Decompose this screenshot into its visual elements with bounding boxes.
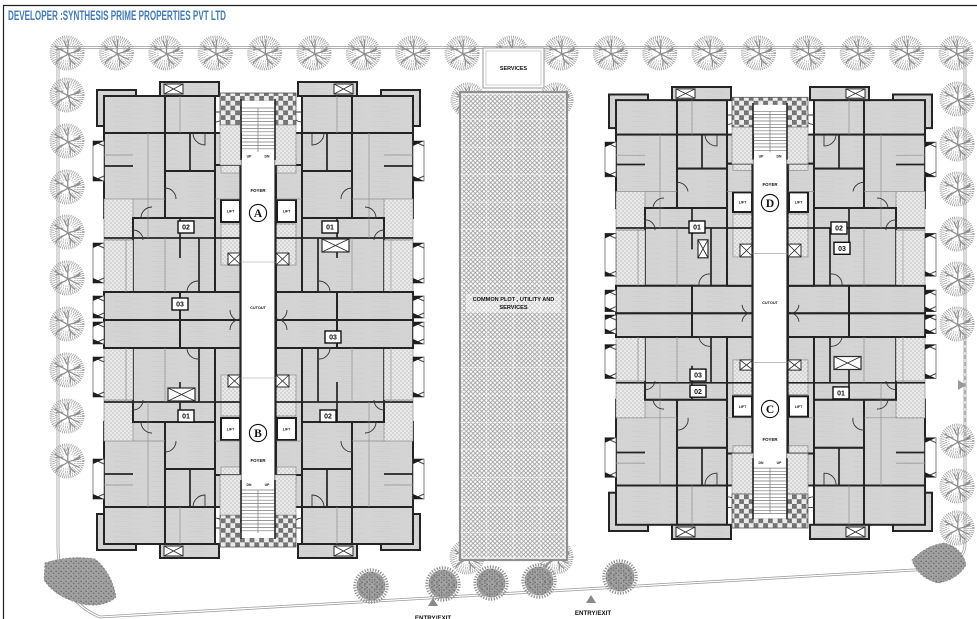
svg-text:UP: UP	[777, 461, 782, 465]
svg-text:ENTRY/EXIT: ENTRY/EXIT	[415, 615, 451, 619]
svg-text:CUTOUT: CUTOUT	[762, 301, 778, 305]
svg-text:03: 03	[176, 302, 184, 309]
svg-text:03: 03	[838, 246, 846, 253]
svg-text:DN: DN	[247, 483, 252, 487]
svg-text:DN: DN	[777, 155, 782, 159]
svg-text:LIFT: LIFT	[739, 405, 747, 409]
svg-text:LIFT: LIFT	[739, 201, 747, 205]
svg-text:C: C	[766, 404, 774, 416]
svg-text:01: 01	[182, 414, 190, 421]
svg-text:SERVICES: SERVICES	[500, 66, 528, 72]
svg-text:02: 02	[835, 226, 843, 233]
svg-text:LIFT: LIFT	[227, 427, 235, 431]
svg-text:ENTRY/EXIT: ENTRY/EXIT	[575, 610, 611, 617]
svg-text:FOYER: FOYER	[762, 437, 778, 442]
svg-text:LIFT: LIFT	[283, 427, 291, 431]
svg-text:A: A	[254, 208, 263, 220]
svg-text:01: 01	[326, 225, 334, 232]
svg-text:DN: DN	[759, 461, 764, 465]
svg-text:DN: DN	[265, 155, 270, 159]
svg-text:03: 03	[694, 373, 702, 380]
svg-text:LIFT: LIFT	[283, 209, 291, 213]
svg-text:CUTOUT: CUTOUT	[250, 306, 266, 310]
svg-text:FOYER: FOYER	[250, 188, 266, 193]
svg-text:D: D	[766, 198, 774, 210]
svg-text:01: 01	[837, 391, 845, 398]
svg-text:LIFT: LIFT	[227, 209, 235, 213]
svg-text:COMMON PLOT , UTILITY AND: COMMON PLOT , UTILITY AND	[473, 297, 555, 303]
svg-text:FOYER: FOYER	[250, 458, 266, 463]
svg-text:01: 01	[693, 225, 701, 232]
svg-text:03: 03	[329, 335, 337, 342]
svg-text:DEVELOPER :SYNTHESIS PRIME PRO: DEVELOPER :SYNTHESIS PRIME PROPERTIES PV…	[8, 8, 226, 23]
svg-text:LIFT: LIFT	[795, 201, 803, 205]
svg-text:FOYER: FOYER	[762, 182, 778, 187]
svg-text:UP: UP	[247, 155, 252, 159]
svg-text:02: 02	[324, 414, 332, 421]
svg-text:02: 02	[182, 225, 190, 232]
svg-text:LIFT: LIFT	[795, 405, 803, 409]
svg-text:UP: UP	[265, 483, 270, 487]
svg-text:UP: UP	[759, 155, 764, 159]
svg-text:02: 02	[694, 389, 702, 396]
svg-text:B: B	[254, 428, 262, 440]
svg-text:SERVICES: SERVICES	[499, 305, 527, 311]
